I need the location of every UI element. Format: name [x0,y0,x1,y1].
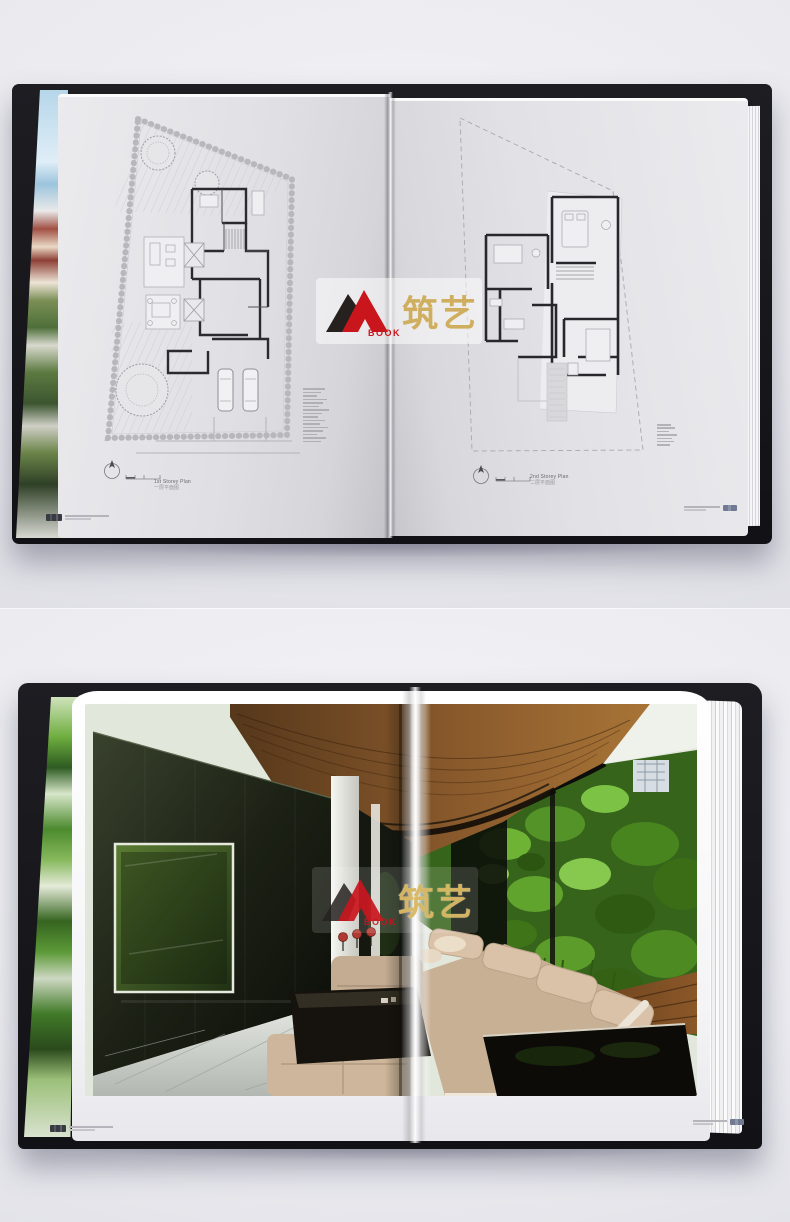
footer-badge [730,1119,744,1125]
car-shape [218,369,258,411]
legend-list [657,424,683,448]
footer-text [65,514,109,520]
footer-text [693,1119,727,1125]
watermark-brand-cn: 筑艺 [402,285,478,337]
north-arrow-icon [474,465,489,484]
plan-caption: 1st Storey Plan 一层平面图 [154,479,191,492]
plan-caption: 2nd Storey Plan 二层平面图 [530,474,569,487]
legend-list [303,388,343,444]
footer-text [69,1125,113,1131]
watermark: BOOK 筑艺 [312,867,478,933]
mountain-logo-icon: BOOK [322,284,402,338]
page-footer [693,1119,744,1125]
roof-strip [547,363,567,421]
watermark: BOOK 筑艺 [316,278,482,344]
watermark-book-text: BOOK [364,917,397,927]
footer-text [684,505,720,511]
footer-badge [50,1125,66,1132]
north-arrow-icon [105,460,120,479]
plan-title-cn: 二层平面图 [530,480,569,486]
plan-title-cn: 一层平面图 [154,485,191,491]
scale-bar [496,477,530,481]
watermark-brand-cn: 筑艺 [398,874,474,926]
product-photo-canvas: 1st Storey Plan 一层平面图 [0,0,790,1222]
watermark-book-text: BOOK [368,328,401,338]
photo-interior-spread: BOOK 筑艺 [0,608,790,1222]
floor-plan-1-drawing [96,111,308,489]
photo-floorplan-spread: 1st Storey Plan 一层平面图 [0,0,790,608]
page-footer [684,505,737,511]
footer-badge [723,505,737,511]
stairs [226,229,244,249]
side-table [483,1024,697,1096]
page-footer [46,514,109,521]
mountain-logo-icon: BOOK [318,873,398,927]
page-footer [50,1125,113,1132]
footer-badge [46,514,62,521]
